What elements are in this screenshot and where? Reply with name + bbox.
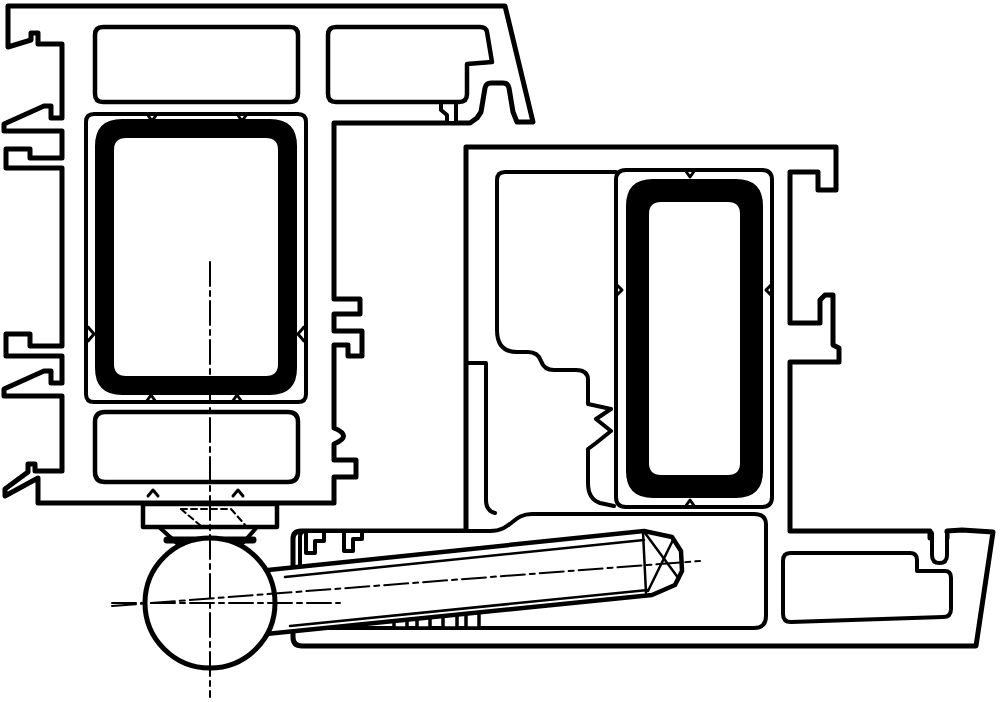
steel-reinforcement-frame-core — [649, 202, 740, 475]
threshold-gasket-slot — [932, 533, 947, 563]
sash-lower-chamber — [95, 412, 298, 482]
steel-reinforcement-sash-core — [114, 138, 278, 376]
sash-top-chamber-1 — [95, 27, 298, 102]
drawing-canvas — [0, 0, 1000, 702]
technical-drawing-page — [0, 0, 1000, 702]
sash-top-chamber-2 — [328, 27, 492, 102]
